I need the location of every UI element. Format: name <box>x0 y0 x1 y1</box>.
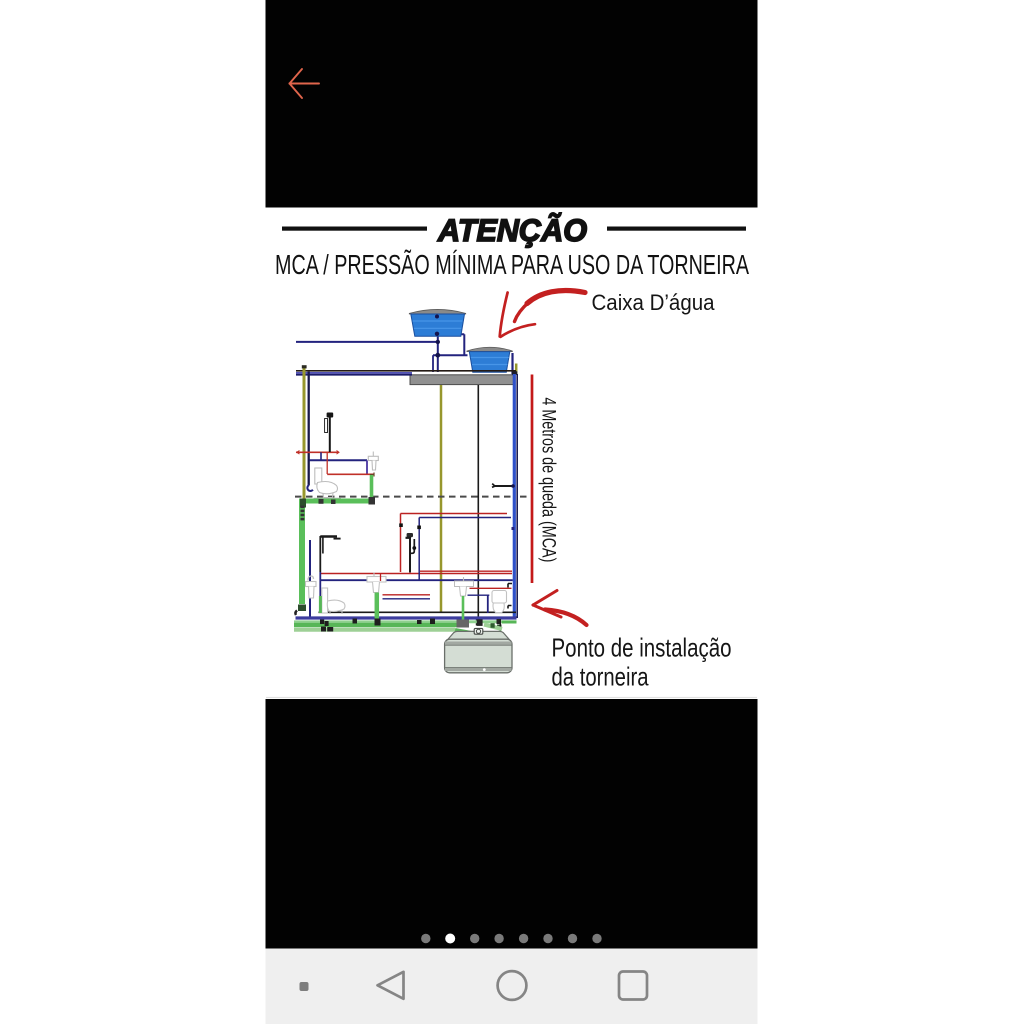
svg-text:MCA / PRESSÃO MÍNIMA PARA USO: MCA / PRESSÃO MÍNIMA PARA USO DA TORNEIR… <box>275 249 749 280</box>
svg-text:4 Metros de queda (MCA): 4 Metros de queda (MCA) <box>538 397 559 562</box>
svg-text:da torneira: da torneira <box>552 662 649 692</box>
svg-text:Caixa D’água: Caixa D’água <box>592 290 716 315</box>
svg-text:ATENÇÃO: ATENÇÃO <box>437 212 587 248</box>
svg-text:Ponto de instalação: Ponto de instalação <box>552 633 732 663</box>
